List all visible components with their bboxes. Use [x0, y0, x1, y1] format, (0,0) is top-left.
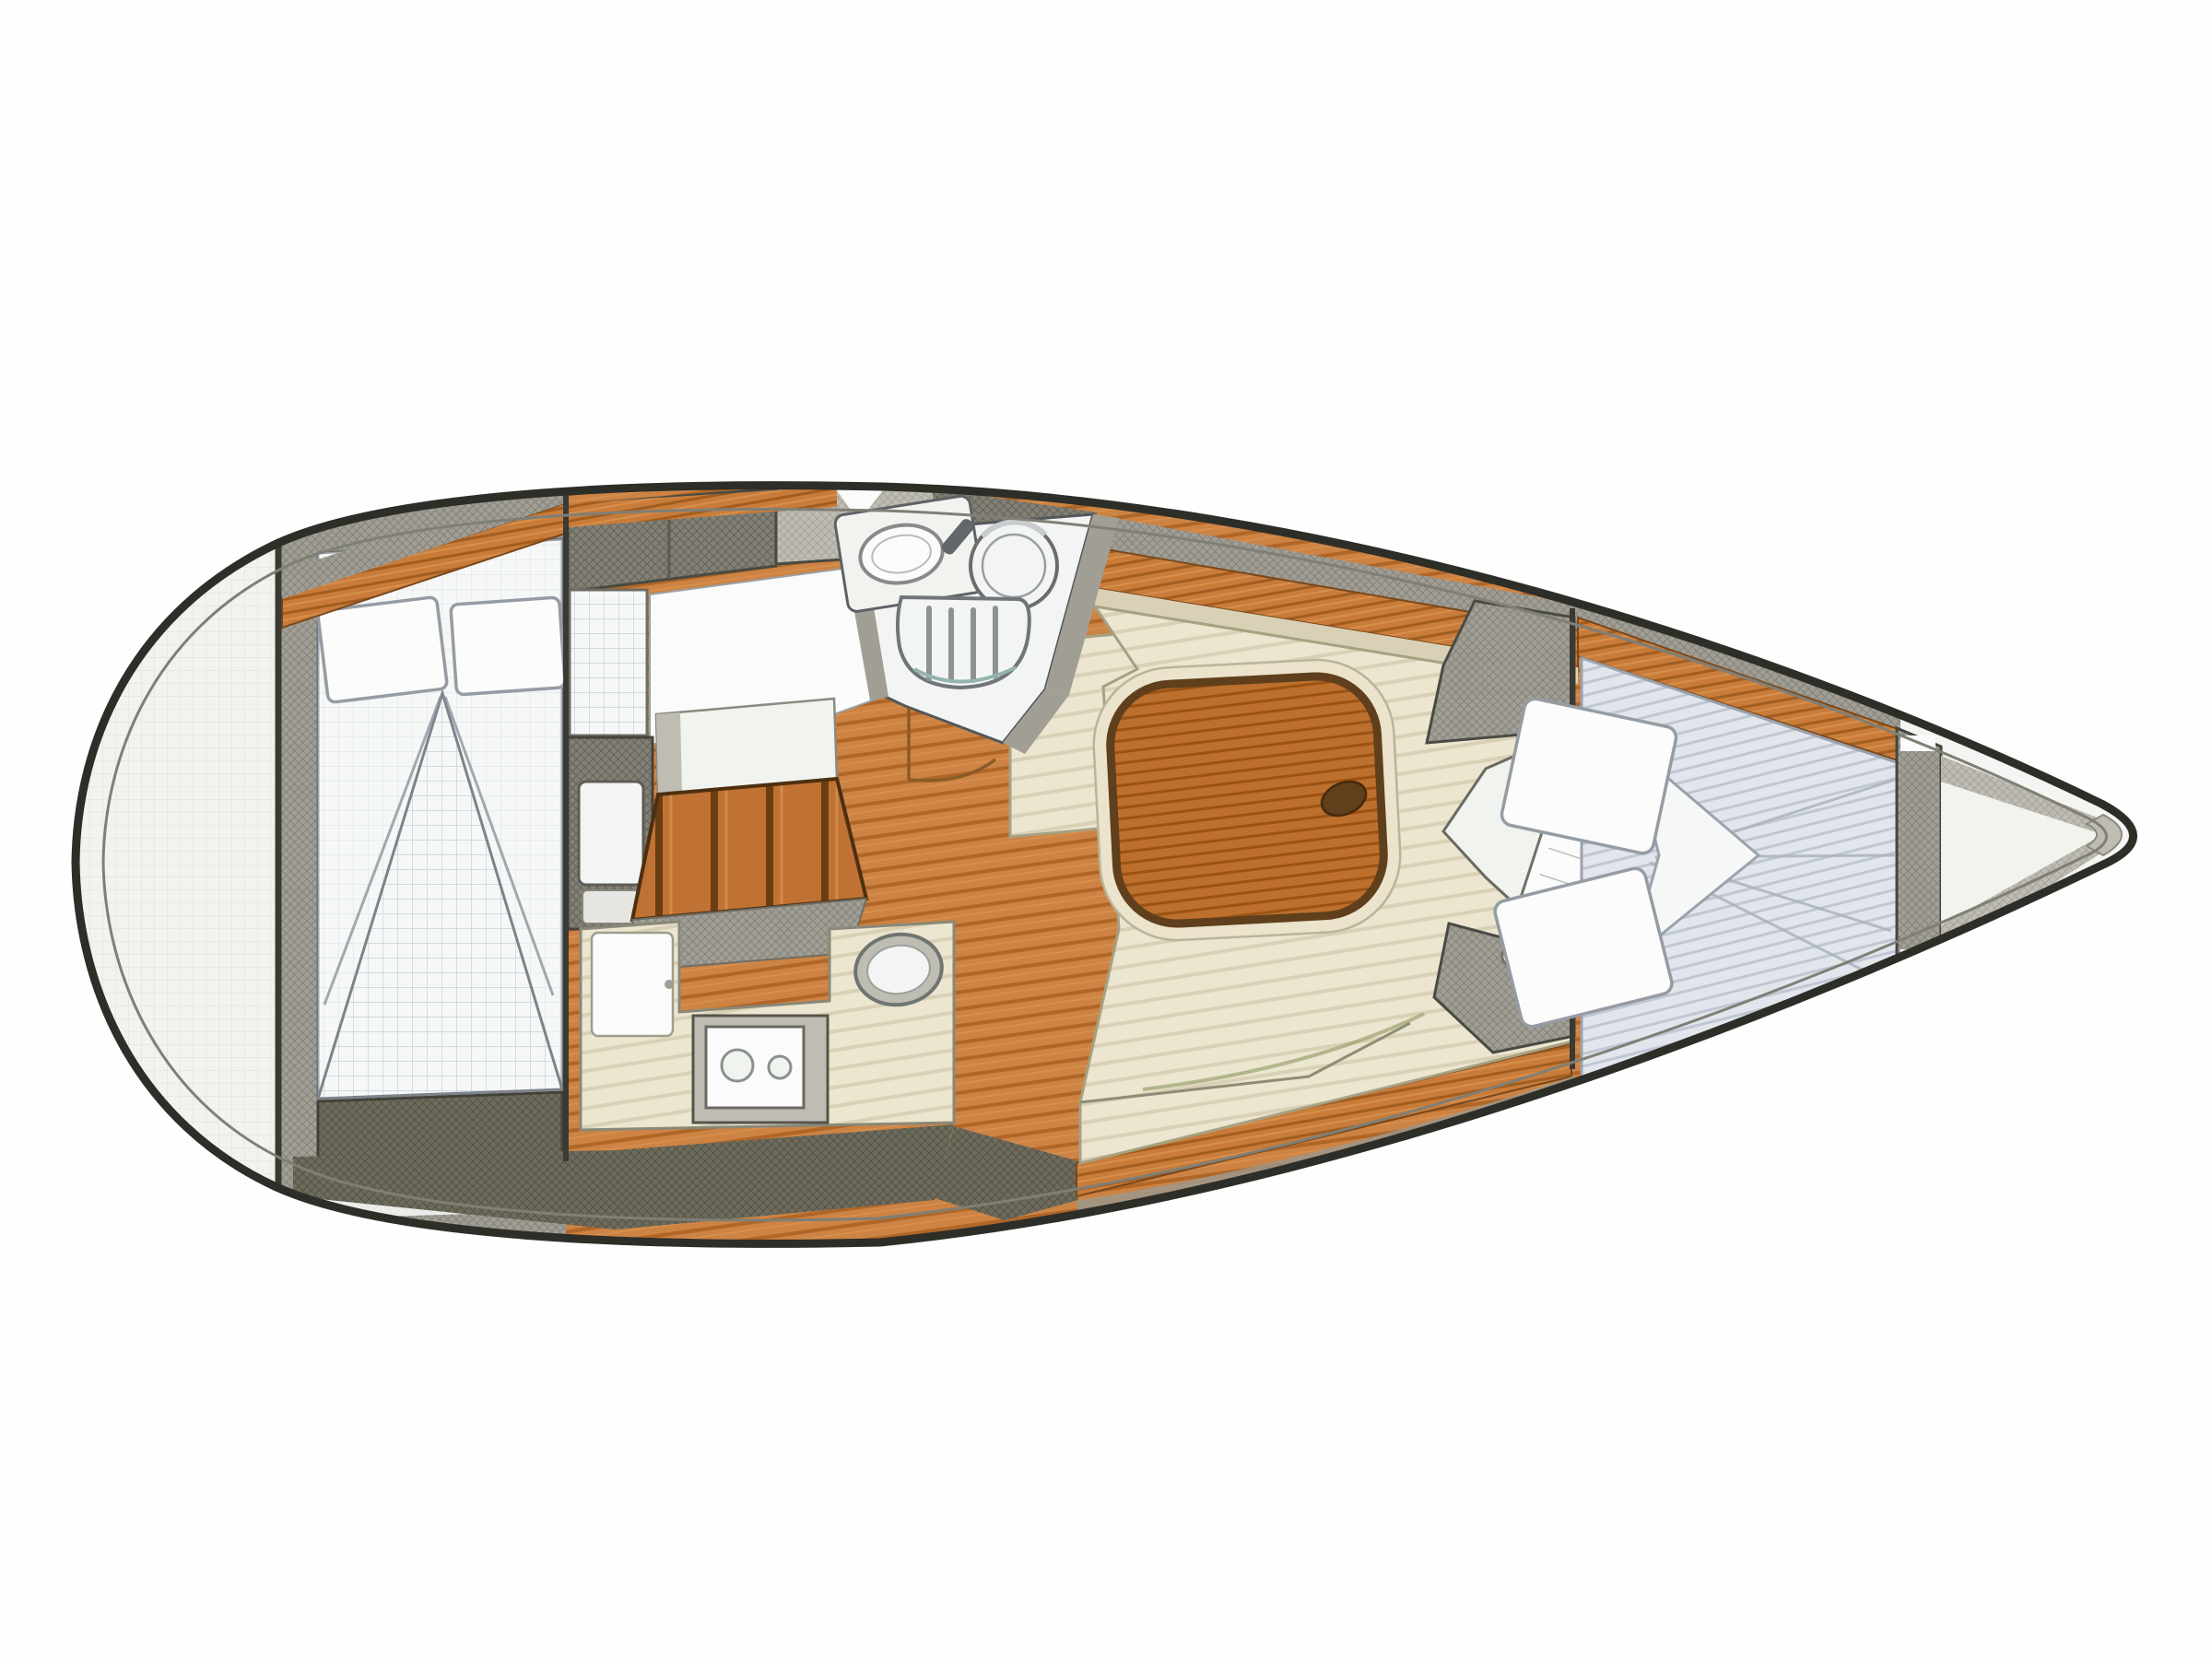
fridge-icon: [579, 782, 643, 885]
flap-latch: [665, 980, 674, 989]
salon-table: [1089, 656, 1404, 945]
counter-flap: [592, 933, 673, 1036]
companionway-steps: [632, 779, 866, 920]
pillow: [317, 596, 447, 702]
sailboat-floor-plan-page: [0, 0, 2212, 1659]
burner-icon: [722, 1050, 753, 1081]
landing-edge: [656, 712, 682, 794]
pillow: [451, 597, 566, 695]
wardrobe-panel: [570, 590, 647, 735]
burner-icon: [769, 1056, 791, 1078]
floor-plan-canvas: [0, 0, 2212, 1659]
shower-grate: [898, 597, 1030, 688]
